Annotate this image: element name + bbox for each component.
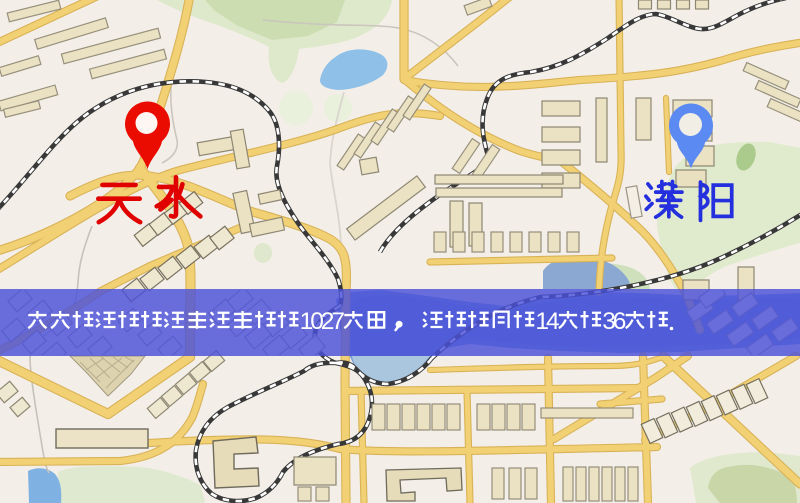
svg-text:4: 4 bbox=[546, 308, 560, 335]
svg-text:7: 7 bbox=[331, 308, 345, 335]
svg-text:6: 6 bbox=[613, 308, 627, 335]
